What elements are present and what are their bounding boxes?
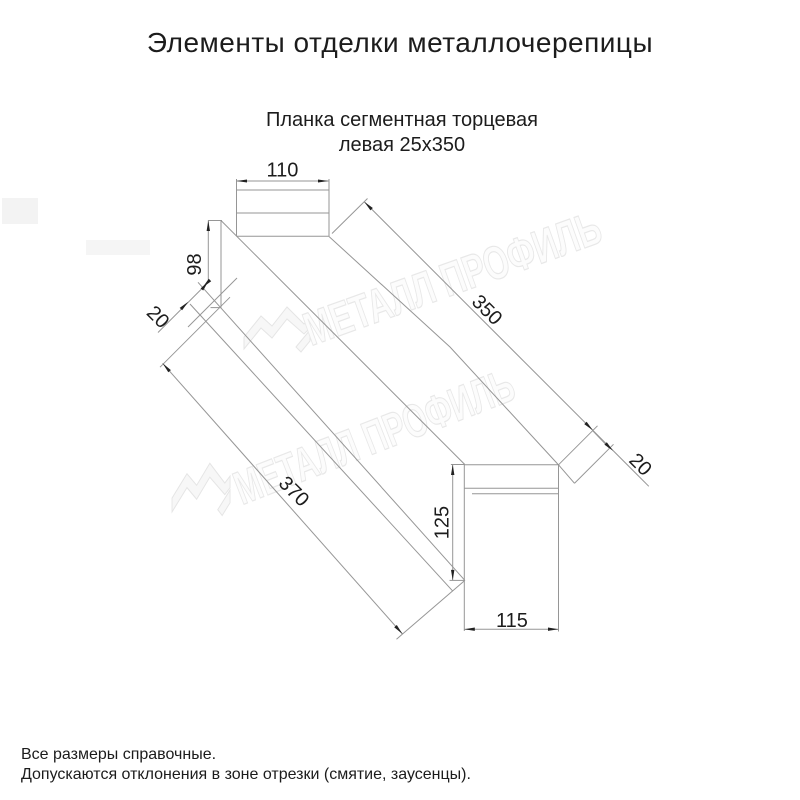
svg-text:20: 20 (624, 449, 655, 480)
svg-text:110: 110 (267, 159, 299, 181)
svg-text:98: 98 (184, 253, 206, 275)
svg-text:125: 125 (432, 506, 454, 539)
svg-text:20: 20 (142, 302, 173, 333)
svg-text:МЕТАЛЛ ПРОФИЛЬ: МЕТАЛЛ ПРОФИЛЬ (226, 358, 521, 514)
svg-text:115: 115 (496, 610, 528, 632)
svg-text:МЕТАЛЛ ПРОФИЛЬ: МЕТАЛЛ ПРОФИЛЬ (297, 200, 609, 355)
